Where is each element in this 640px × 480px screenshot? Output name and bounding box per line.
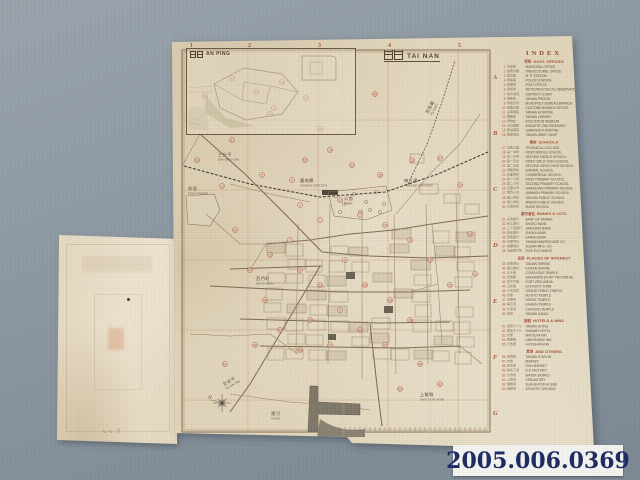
city-block	[352, 262, 369, 272]
map-marker: 8	[298, 268, 303, 273]
marker-number: 5	[261, 173, 263, 177]
index-section-kanji: 名所	[518, 256, 525, 261]
marker-number: 12	[220, 184, 224, 188]
index-section-title: SCHOOLS	[539, 140, 559, 145]
map-marker: 59	[398, 387, 403, 392]
index-row-kanji: 運河	[507, 312, 524, 317]
map-sheet: N 12345ABCDEFG 魚塭FISH PONDS三分子SAN BUN SH…	[170, 34, 596, 454]
map-marker: 12	[220, 184, 225, 189]
marker-number: 9	[339, 308, 341, 312]
harbour-shape	[317, 419, 365, 437]
map-marker: 16	[410, 158, 415, 163]
map-label: 公園PARK	[344, 196, 353, 205]
marker-number: 16	[410, 158, 414, 162]
marker-number: 48	[418, 362, 422, 366]
marker-number: 47	[383, 343, 387, 347]
grid-row-letter: A	[492, 74, 498, 81]
marker-number: 17	[458, 183, 462, 187]
index-row: 50運河TAINAN CANAL	[500, 312, 588, 317]
index-row: 30盲啞學校BLIND SCHOOL	[500, 205, 588, 210]
city-block	[456, 307, 473, 317]
map-label-romanized: NISHI MON	[256, 281, 274, 285]
city-blocks	[264, 229, 475, 364]
kanji-glyph	[394, 50, 403, 60]
city-block	[267, 243, 286, 253]
marker-number: 57	[303, 158, 307, 162]
map-marker: 51	[233, 228, 238, 233]
marker-number: 4	[299, 203, 301, 207]
compass-rose: N	[207, 394, 231, 412]
city-block	[432, 351, 449, 361]
map-marker: 34	[363, 283, 368, 288]
compass-center	[221, 402, 223, 404]
map-marker: 1	[318, 218, 323, 223]
map-marker: 5	[260, 173, 265, 178]
marker-number: 3	[291, 178, 293, 182]
map-marker: 40	[263, 298, 268, 303]
index-section-header: 銀行會社BANKS & CO'S.	[500, 211, 588, 216]
city-block	[285, 244, 303, 256]
tainan-kanji	[384, 50, 403, 60]
index-row-number: 38	[500, 249, 506, 254]
index-sections: 官衙GOVT. OFFICES1市役所MUNICIPAL OFFICE2臺南州廳…	[500, 59, 588, 391]
railway-branch-line	[408, 60, 455, 184]
map-marker: 17	[458, 183, 463, 188]
tree-symbol	[378, 210, 381, 213]
map-label: 西門町NISHI MON	[256, 276, 274, 285]
index-row-name: HIYOSHIYA INN	[526, 343, 549, 348]
index-section-header: 旅館HOTELS & INNS	[500, 318, 588, 323]
index-section-kanji: 銀行會社	[521, 211, 535, 216]
map-label-romanized: TAINAN STATION	[300, 183, 327, 187]
museum-photo-backdrop: ∿∿ 8	[0, 0, 640, 480]
index-panel: INDEX 官衙GOVT. OFFICES1市役所MUNICIPAL OFFIC…	[500, 49, 588, 391]
map-marker: 21	[473, 272, 478, 277]
city-block	[454, 322, 470, 334]
index-row: 55日吉屋HIYOSHIYA INN	[500, 343, 588, 348]
marker-number: 1	[319, 218, 321, 222]
marker-number: 34	[363, 283, 367, 287]
marker-number: 26	[388, 298, 392, 302]
map-label-romanized: PARK	[344, 201, 353, 205]
city-block	[455, 352, 471, 364]
index-section-title: GOVT. OFFICES	[533, 59, 563, 64]
kanji-glyph	[384, 50, 393, 60]
map-marker: 27	[328, 343, 333, 348]
marker-number: 14	[328, 148, 332, 152]
map-marker: 20	[468, 232, 473, 237]
marker-number: 35	[308, 318, 312, 322]
index-section-header: 官衙GOVT. OFFICES	[500, 59, 588, 64]
fold-crease-vertical-2	[428, 34, 431, 454]
map-marker: 58	[298, 348, 303, 353]
tainan-romanized: TAI NAN	[407, 53, 440, 60]
marker-number: 59	[398, 387, 402, 391]
index-row-number: 30	[500, 205, 506, 210]
marker-number: 58	[298, 348, 302, 352]
folded-cover-wrap: ∿∿ 8	[56, 232, 182, 446]
city-block	[286, 274, 303, 283]
map-title: TAI NAN	[384, 50, 440, 62]
map-marker: 57	[303, 158, 308, 163]
index-section-kanji: 官衙	[524, 59, 531, 64]
marker-number: 62	[438, 382, 442, 386]
city-block	[309, 350, 326, 360]
cover-showthrough-header	[82, 256, 152, 272]
index-section-header: 學校SCHOOLS	[500, 140, 588, 145]
map-marker: 47	[383, 343, 388, 348]
index-row-kanji: 米穀取引所	[507, 249, 524, 254]
index-section-header: 名所PLACES OF INTEREST	[500, 256, 588, 261]
map-marker: 55	[373, 92, 378, 97]
map-marker: 2	[358, 213, 363, 218]
marker-number: 46	[253, 343, 257, 347]
index-row-number: 55	[500, 343, 506, 348]
marker-number: 27	[328, 343, 332, 347]
city-block	[370, 333, 389, 343]
index-row-name: ATHLETIC GROUND	[526, 387, 556, 392]
grid-row-letter: G	[493, 410, 498, 417]
tree-symbol	[382, 202, 385, 205]
map-label: 臺南驛TAINAN STATION	[300, 177, 327, 187]
index-section-kanji: 學校	[530, 140, 537, 145]
marker-number: 38	[358, 328, 362, 332]
map-marker: 37	[438, 156, 443, 161]
kanji-glyph	[190, 51, 196, 57]
index-section-title: AND OTHERS	[535, 349, 561, 354]
map-marker: 48	[418, 362, 423, 367]
index-row-kanji: 運動場	[507, 387, 524, 392]
marker-number: 24	[383, 223, 387, 227]
city-block	[373, 273, 392, 282]
grid-row-letter: B	[492, 130, 498, 137]
city-block	[391, 349, 409, 360]
anping-inset-frame	[186, 48, 356, 135]
index-row-number: 50	[500, 312, 506, 317]
city-block	[352, 337, 369, 346]
map-marker: 62	[438, 382, 443, 387]
map-marker: 46	[253, 343, 258, 348]
city-block	[436, 246, 455, 256]
catalog-number-label: 2005.006.0369	[453, 445, 623, 476]
grid-row-letter: D	[492, 242, 498, 249]
marker-number: 20	[468, 232, 472, 236]
marker-number: 37	[438, 156, 442, 160]
marker-number: 28	[408, 318, 412, 322]
fold-crease-vertical-1	[342, 34, 345, 454]
index-row-kanji: 陸軍墓地	[507, 133, 524, 138]
marker-number: 32	[318, 283, 322, 287]
marker-number: 18	[378, 173, 382, 177]
map-sheet-wrap: N 12345ABCDEFG 魚塭FISH PONDS三分子SAN BUN SH…	[170, 34, 596, 454]
index-row-number: 63	[500, 387, 506, 392]
index-row-name: TAINAN CANAL	[526, 312, 549, 317]
pin-hole-dot	[127, 298, 130, 301]
city-block	[331, 321, 349, 332]
index-section-header: 其他AND OTHERS	[500, 349, 588, 354]
map-marker: 29	[448, 283, 453, 288]
anping-romanized: AN PING	[206, 51, 230, 57]
index-section-title: PLACES OF INTEREST	[527, 256, 571, 261]
map-marker: 24	[383, 223, 388, 228]
folded-cover-sheet: ∿∿ 8	[56, 232, 182, 446]
city-block	[310, 305, 327, 315]
marker-number: 21	[473, 272, 477, 276]
map-marker: 61	[223, 362, 228, 367]
marker-number: 55	[373, 92, 377, 96]
map-marker: 41	[248, 268, 253, 273]
tree-symbol	[364, 200, 367, 203]
index-section-kanji: 其他	[526, 349, 533, 354]
map-marker: 32	[318, 283, 323, 288]
map-marker: 42	[278, 328, 283, 333]
index-section-title: BANKS & CO'S.	[537, 212, 567, 217]
tree-symbol	[368, 208, 371, 211]
city-block	[307, 290, 326, 300]
marker-number: 42	[278, 328, 282, 332]
marker-number: 22	[350, 163, 354, 167]
anping-inset-title: AN PING	[190, 51, 230, 57]
city-block	[264, 303, 281, 312]
index-section-kanji: 旅館	[524, 318, 531, 323]
map-marker: 28	[408, 318, 413, 323]
pencil-annotation: ∿∿ 8	[102, 427, 122, 435]
index-row: 38米穀取引所RICE EXCHANGE	[500, 249, 588, 254]
city-block	[433, 231, 449, 243]
marker-number: 41	[248, 268, 252, 272]
grid-col-number: 5	[458, 43, 461, 49]
map-label: 至安平TO AN PEI	[222, 373, 241, 390]
cover-showthrough-seal	[108, 328, 124, 350]
index-row-kanji: 日吉屋	[507, 343, 524, 348]
map-marker: 38	[358, 328, 363, 333]
index-row: 16陸軍墓地TAINAN ARMY CAMP	[500, 133, 588, 138]
map-marker: 4	[298, 203, 303, 208]
map-marker: 18	[378, 173, 383, 178]
marker-number: 8	[299, 268, 301, 272]
marker-number: 2	[359, 213, 361, 217]
index-row-name: BLIND SCHOOL	[526, 205, 550, 210]
map-marker: 3	[290, 178, 295, 183]
map-marker: 35	[308, 318, 313, 323]
grid-row-letter: C	[493, 186, 498, 193]
grid-row-letter: F	[493, 354, 498, 361]
marker-number: 31	[230, 138, 234, 142]
city-block	[434, 336, 453, 345]
city-block	[330, 291, 348, 302]
map-marker: 14	[328, 148, 333, 153]
map-label: 運河UNGA	[271, 410, 281, 420]
index-section-title: HOTELS & INNS	[533, 319, 564, 324]
kanji-glyph	[197, 51, 203, 57]
canal-shape	[308, 386, 360, 432]
map-marker: 22	[350, 163, 355, 168]
index-row-kanji: 盲啞學校	[507, 205, 524, 210]
map-label: 至嘉義TO KAGI	[424, 99, 440, 116]
city-block	[390, 244, 409, 253]
marker-number: 33	[268, 253, 272, 257]
map-label-romanized: FISH PONDS	[188, 191, 208, 195]
map-label-romanized: SHO KON SHIN	[420, 397, 444, 401]
city-block	[394, 289, 413, 298]
fold-crease-horizontal	[170, 238, 596, 241]
map-marker: 26	[388, 298, 393, 303]
map-marker: 31	[230, 138, 235, 143]
marker-number: 29	[448, 283, 452, 287]
map-label-romanized: UNGA	[271, 416, 280, 420]
marker-number: 51	[233, 228, 237, 232]
index-row-name: TAINAN ARMY CAMP	[526, 133, 557, 138]
map-marker: 50	[195, 158, 200, 163]
marker-number: 40	[263, 298, 267, 302]
city-block	[455, 277, 472, 287]
anping-kanji	[190, 51, 203, 57]
city-block	[349, 247, 368, 256]
index-title: INDEX	[500, 49, 588, 57]
marker-number: 50	[195, 158, 199, 162]
map-label: 上鯤鯓SHO KON SHIN	[420, 391, 444, 401]
map-label: 三分子SAN BUN SHI	[218, 151, 239, 161]
city-block	[287, 304, 306, 313]
city-block	[457, 262, 474, 271]
city-block	[306, 335, 323, 345]
map-marker: 33	[268, 253, 273, 258]
grid-row-letter: E	[492, 298, 498, 305]
index-row-name: RICE EXCHANGE	[526, 249, 552, 254]
fish-pond-shape	[186, 194, 220, 226]
grid-col-number: 4	[388, 43, 391, 49]
index-row: 63運動場ATHLETIC GROUND	[500, 387, 588, 392]
map-label-romanized: SAN BUN SHI	[218, 157, 239, 161]
marker-number: 61	[223, 362, 227, 366]
index-row-number: 16	[500, 133, 506, 138]
